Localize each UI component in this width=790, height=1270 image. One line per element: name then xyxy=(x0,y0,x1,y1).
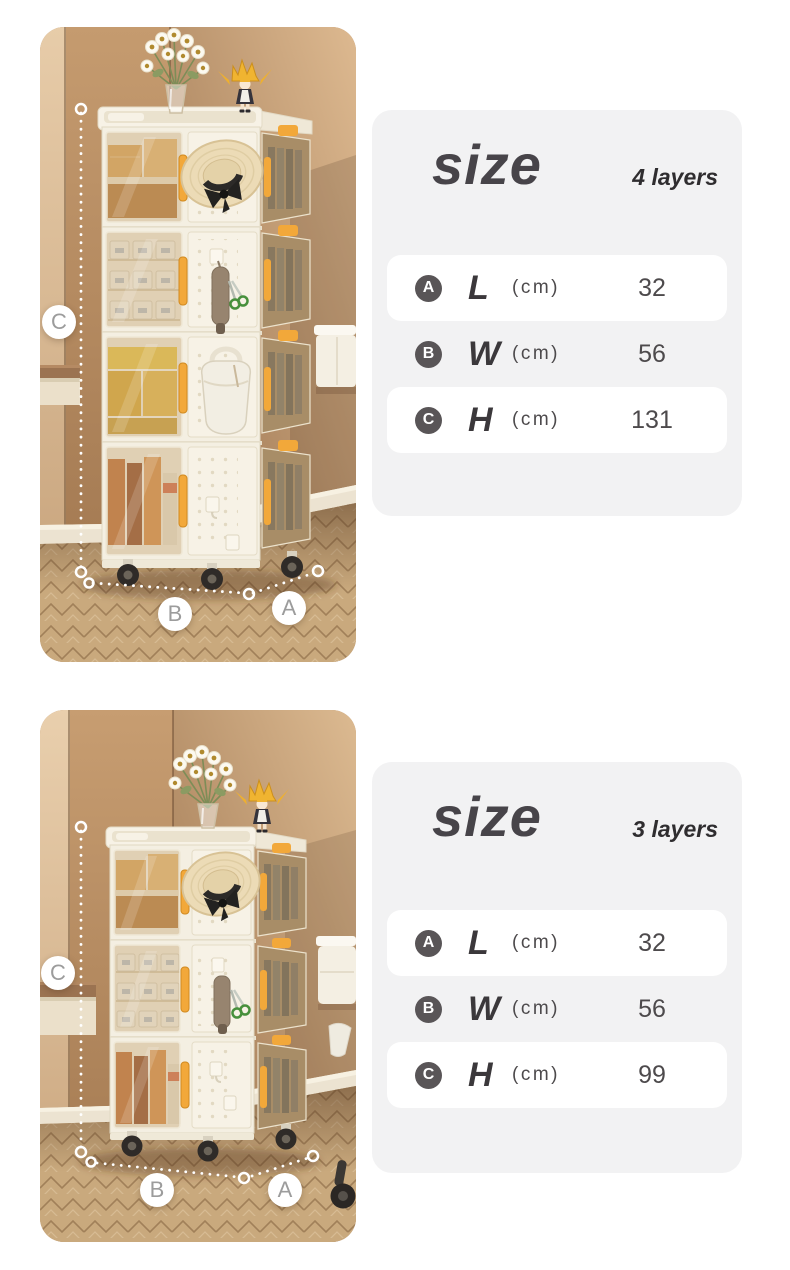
dim-value: 131 xyxy=(617,406,687,435)
product-size-page: C B A size 4 layers A L (cm) 32 B W (cm)… xyxy=(0,0,790,1270)
dim-letter: W xyxy=(468,335,512,374)
spec-row-height: C H (cm) 131 xyxy=(387,387,727,453)
room-scene-4layer xyxy=(40,27,356,662)
dim-letter: L xyxy=(468,924,512,963)
spec-row-height: C H (cm) 99 xyxy=(387,1042,727,1108)
size-panel-3layer: size 3 layers A L (cm) 32 B W (cm) 56 C … xyxy=(372,762,742,1173)
dim-unit: (cm) xyxy=(512,343,560,365)
size-panel-4layer: size 4 layers A L (cm) 32 B W (cm) 56 C … xyxy=(372,110,742,516)
dim-value: 56 xyxy=(617,995,687,1024)
badge-c: C xyxy=(415,1062,442,1089)
dim-letter: L xyxy=(468,269,512,308)
depth-dim-label: A xyxy=(272,591,306,625)
layers-count-label: 4 layers xyxy=(632,164,718,191)
badge-b: B xyxy=(415,341,442,368)
dim-unit: (cm) xyxy=(512,1064,560,1086)
room-scene-3layer xyxy=(40,710,356,1242)
depth-dim-label: A xyxy=(268,1173,302,1207)
badge-a: A xyxy=(415,930,442,957)
wall-shelf xyxy=(40,982,96,1035)
spec-row-width: B W (cm) 56 xyxy=(387,321,727,387)
spec-rows: A L (cm) 32 B W (cm) 56 C H (cm) 99 xyxy=(387,910,727,1108)
size-panel-title: size xyxy=(432,784,542,849)
handbag xyxy=(202,349,251,434)
dim-unit: (cm) xyxy=(512,932,560,954)
badge-a: A xyxy=(415,275,442,302)
dim-value: 32 xyxy=(617,929,687,958)
spec-row-length: A L (cm) 32 xyxy=(387,255,727,321)
dim-unit: (cm) xyxy=(512,998,560,1020)
product-photo-4layer: C B A xyxy=(40,27,356,662)
width-dim-label: B xyxy=(158,597,192,631)
dim-value: 99 xyxy=(617,1061,687,1090)
product-photo-3layer: C B A xyxy=(40,710,356,1242)
spec-rows: A L (cm) 32 B W (cm) 56 C H (cm) 131 xyxy=(387,255,727,453)
layers-count-label: 3 layers xyxy=(632,816,718,843)
width-dim-label: B xyxy=(140,1173,174,1207)
badge-c: C xyxy=(415,407,442,434)
wall-cabinet xyxy=(314,325,356,394)
wall-shelf xyxy=(40,365,80,405)
dim-unit: (cm) xyxy=(512,277,560,299)
dim-letter: H xyxy=(468,1056,512,1095)
dim-value: 32 xyxy=(617,274,687,303)
desk-drawer-unit xyxy=(316,936,356,1010)
dim-letter: W xyxy=(468,990,512,1029)
size-panel-title: size xyxy=(432,132,542,197)
height-dim-label: C xyxy=(42,305,76,339)
spec-row-length: A L (cm) 32 xyxy=(387,910,727,976)
dim-value: 56 xyxy=(617,340,687,369)
height-dim-label: C xyxy=(41,956,75,990)
dim-letter: H xyxy=(468,401,512,440)
spec-row-width: B W (cm) 56 xyxy=(387,976,727,1042)
badge-b: B xyxy=(415,996,442,1023)
dim-unit: (cm) xyxy=(512,409,560,431)
